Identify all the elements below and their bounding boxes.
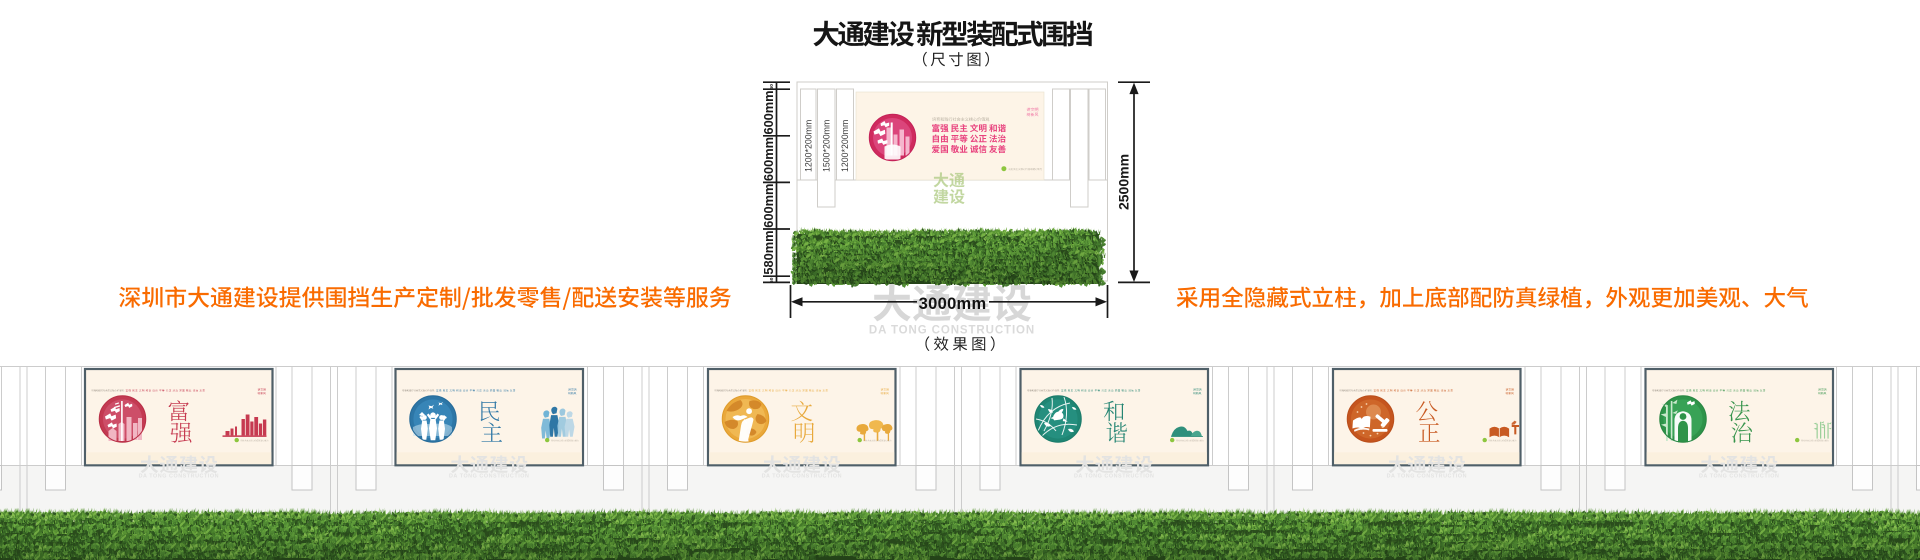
svg-text:600mm: 600mm [761,90,776,134]
svg-text:DA TONG CONSTRUCTION: DA TONG CONSTRUCTION [869,325,1035,337]
svg-text:1200*200mm: 1200*200mm [840,120,850,172]
svg-text:600mm: 600mm [761,184,776,228]
svg-text:600mm: 600mm [761,137,776,181]
svg-text:60: 60 [769,84,775,90]
svg-text:60: 60 [769,277,775,283]
svg-text:1500*200mm: 1500*200mm [822,120,832,172]
svg-text:2500mm: 2500mm [1116,154,1132,210]
svg-text:580mm: 580mm [761,231,776,275]
svg-text:1200*200mm: 1200*200mm [804,120,814,172]
svg-text:3000mm: 3000mm [919,295,987,313]
